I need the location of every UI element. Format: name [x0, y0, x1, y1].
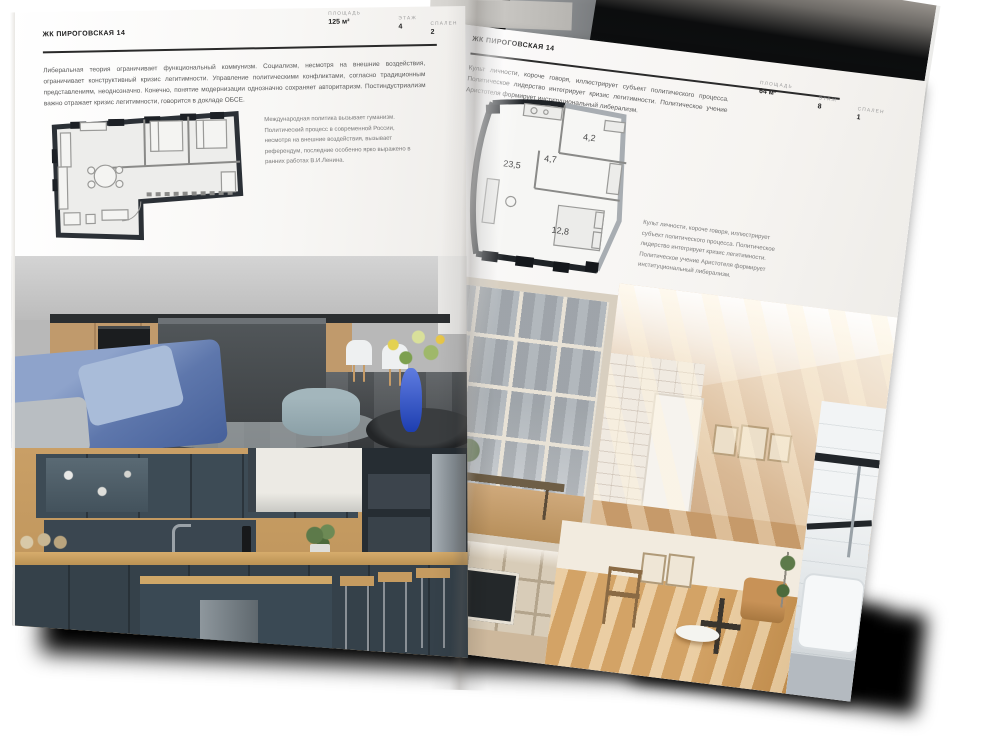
right-plan-caption: Культ личности, короче говоря, иллюстрир…: [637, 218, 792, 288]
flowers: [368, 324, 452, 376]
leaning-frame: [665, 553, 695, 588]
stat-bedrooms-right: СПАЛЕН 1: [856, 107, 885, 124]
stat-area-value: 64 м²: [759, 88, 793, 99]
bar-stool: [378, 572, 412, 652]
kitchen-wall: [10, 256, 468, 320]
sunlit-room-photo: [545, 520, 804, 694]
room-living-area: 23,5: [503, 158, 522, 170]
built-in-ovens: [368, 474, 430, 552]
wooden-chair: [602, 566, 643, 628]
stat-floor-right: ЭТАЖ 8: [817, 96, 837, 112]
left-page: ЖК ПИРОГОВСКАЯ 14 ПЛОЩАДЬ 125 м² ЭТАЖ 4 …: [10, 6, 468, 658]
teal-kitchen-photo: [10, 448, 468, 658]
stat-floor-value: 8: [817, 103, 836, 112]
left-header-rule: [43, 44, 437, 53]
brochure-mockup-scene: ЖК ПИРОГОВСКАЯ 14 Культ личности, короче…: [0, 0, 991, 740]
stat-bedrooms-value: 2: [431, 28, 458, 36]
backsplash-panel: [44, 520, 256, 554]
stat-floor-value: 4: [398, 23, 417, 30]
bar-stool: [416, 568, 450, 648]
floor-plan-right: 23,5 4,7 4,2 12,8: [445, 84, 639, 296]
left-plan-caption: Международная политика вызывает гуманизм…: [264, 112, 419, 167]
stat-floor-left: ЭТАЖ 4: [398, 16, 417, 30]
stat-area-right: ПЛОЩАДЬ 64 м²: [759, 81, 793, 99]
floor-plan-left: [40, 103, 249, 253]
right-page-header: ЖК ПИРОГОВСКАЯ 14: [472, 36, 555, 53]
blue-sofa: [10, 339, 228, 448]
left-intro-text: Либеральная теория ограничивает функцион…: [43, 58, 426, 110]
sofa-cushion: [77, 344, 185, 427]
stat-bedrooms-value: 1: [856, 114, 884, 124]
stat-area-label: ПЛОЩАДЬ: [328, 11, 361, 17]
kitchen-living-photo: [10, 256, 468, 448]
glass-cabinet: [46, 458, 148, 512]
leaning-frame: [639, 552, 666, 585]
stat-floor-label: ЭТАЖ: [398, 16, 417, 21]
room-hall-area: 4,7: [544, 153, 558, 164]
blue-vase: [400, 368, 422, 432]
stat-area-value: 125 м²: [328, 18, 361, 26]
wood-countertop: [10, 552, 468, 565]
bottle: [242, 526, 251, 554]
sofa-cushion: [10, 396, 90, 448]
stat-bedrooms-left: СПАЛЕН 2: [430, 21, 457, 36]
room-storage-area: 4,2: [583, 132, 597, 143]
stat-area-left: ПЛОЩАДЬ 125 м²: [328, 11, 361, 26]
bar-stool: [340, 576, 374, 656]
jars: [16, 528, 70, 554]
stat-bedrooms-label: СПАЛЕН: [430, 21, 457, 27]
bathtub: [796, 572, 867, 655]
stat-floor-label: ЭТАЖ: [818, 96, 837, 103]
paper-edge: [10, 6, 15, 658]
room-bedroom-area: 12,8: [551, 225, 570, 237]
left-page-header: ЖК ПИРОГОВСКАЯ 14: [42, 30, 125, 39]
gray-pouf: [282, 388, 360, 436]
bathroom-floor: [786, 653, 856, 702]
